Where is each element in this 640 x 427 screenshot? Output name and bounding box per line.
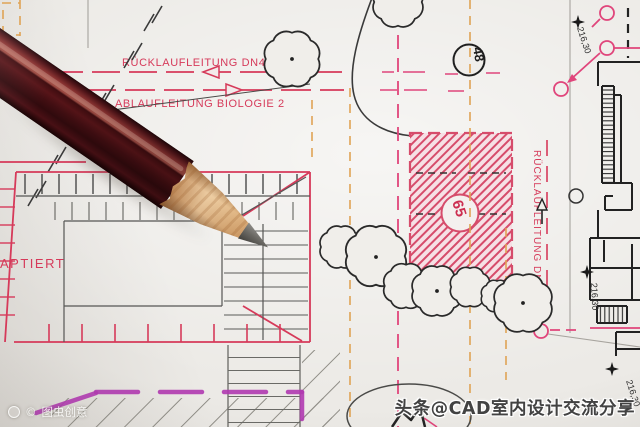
stock-watermark: © 图虫创意 [8,404,88,420]
pipe-return-label: RÜCKLAUFLEITUNG DN400 [122,57,279,69]
stock-name: 图虫创意 [42,404,88,420]
node-48-label: 48 [470,46,487,63]
adaptiert-label: APTIERT [0,256,65,271]
hatched-zone-65: 65 [410,133,512,285]
toutiao-watermark: 头条@CAD室内设计交流分享 [395,395,635,420]
pink-node-circle [600,41,614,55]
stock-copyright: © [25,405,37,419]
site-plan-drawing: RÜCKLAUFLEITUNG DN400 ABLAUFLEITUNG BIOL… [0,0,640,427]
survey-marker-icon [605,362,619,376]
buildings-right: 216,30 216,30 216,30 [534,6,640,408]
pipe-outfall-label: ABLAUFLEITUNG BIOLOGIE 2 [115,98,285,110]
pink-node-circle [600,6,614,20]
stall-ticks-bottom [20,324,308,342]
ladder-rungs [228,346,300,427]
stair-hatch-lower [597,306,627,323]
elevation-label-mid: 216,30 [589,283,600,311]
elevation-label-top: 216,30 [575,26,593,55]
gravel-hatch-2 [302,350,340,427]
pink-node-circle [554,82,568,96]
manhole-circle [569,189,583,203]
stair-hatch-upper [602,86,614,183]
tree-icon [373,0,423,27]
photo-of-blueprint: RÜCKLAUFLEITUNG DN400 ABLAUFLEITUNG BIOL… [0,0,640,427]
stock-logo-icon [8,406,20,418]
